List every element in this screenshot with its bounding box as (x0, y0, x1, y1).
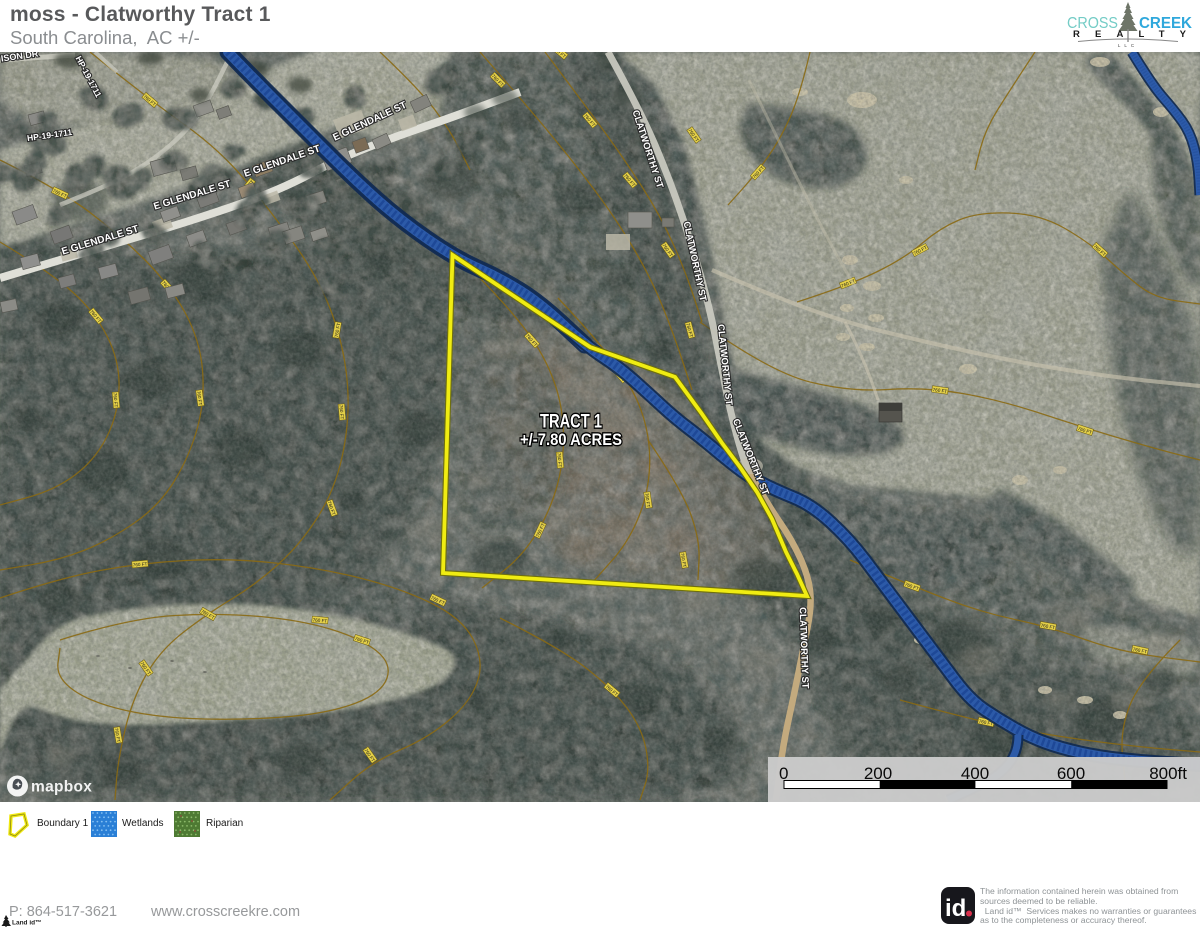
svg-text:Land id™: Land id™ (12, 920, 42, 927)
svg-text:mapbox: mapbox (31, 779, 92, 796)
svg-text:LLC: LLC (1118, 43, 1138, 48)
svg-text:id: id (945, 895, 966, 922)
svg-text:+/-7.80 ACRES: +/-7.80 ACRES (520, 430, 622, 449)
